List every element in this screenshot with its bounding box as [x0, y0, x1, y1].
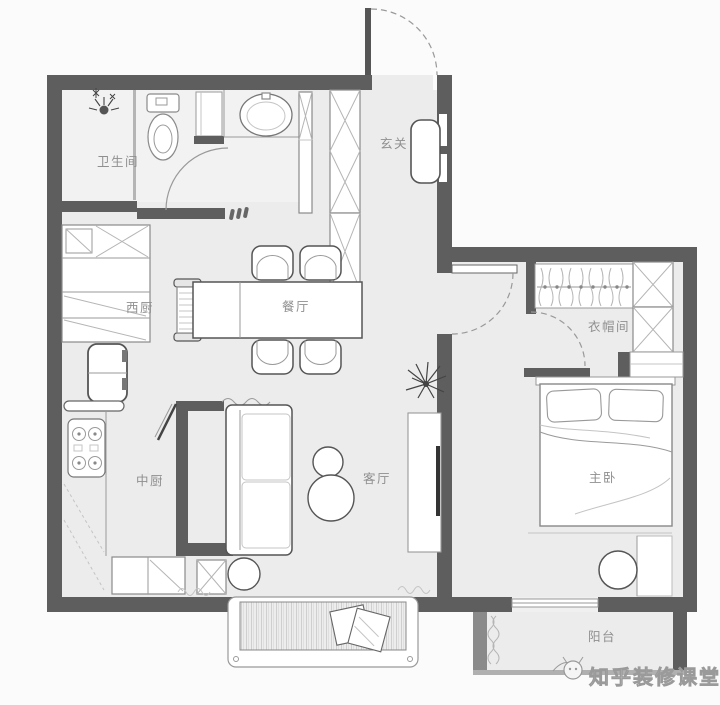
- label-bathroom: 卫生间: [97, 155, 139, 169]
- toilet-icon: [147, 94, 179, 160]
- shower-partition: [133, 90, 136, 200]
- fridge-icon: [88, 344, 127, 402]
- shoe-bench: [411, 120, 440, 183]
- wardrobe-hanging-rail: [535, 264, 633, 308]
- dining-chair: [252, 246, 293, 280]
- bedroom-balcony-glass: [512, 599, 598, 607]
- dining-table: [193, 282, 362, 338]
- label-master-bedroom: 主卧: [589, 471, 617, 485]
- label-entry: 玄关: [380, 136, 408, 151]
- coffee-table-large: [308, 475, 354, 521]
- label-dining: 餐厅: [282, 299, 310, 314]
- coffee-table-small: [313, 447, 343, 477]
- floor-stool: [228, 558, 260, 590]
- label-chinese-kitchen: 中厨: [136, 473, 164, 488]
- floor-plan-canvas: 卫生间 玄关 西厨 餐厅 中厨 客厅 衣帽间 主卧 阳台 知乎装修课堂: [0, 0, 720, 705]
- sink-icon: [240, 93, 292, 136]
- floor-plan-drawing: 卫生间 玄关 西厨 餐厅 中厨 客厅 衣帽间 主卧 阳台 知乎装修课堂: [0, 0, 720, 705]
- dining-chair: [300, 340, 341, 374]
- dining-chair: [300, 246, 341, 280]
- label-living: 客厅: [363, 471, 391, 486]
- dining-chair: [252, 340, 293, 374]
- bedroom-stool: [599, 551, 637, 589]
- sofa: [226, 405, 292, 555]
- watermark-text: 知乎装修课堂: [589, 665, 720, 689]
- kitchen-base-cabinet: [112, 557, 185, 594]
- balcony-door-panel: [637, 536, 672, 596]
- bed: [540, 384, 672, 526]
- tv-cabinet: [408, 413, 441, 552]
- label-cloakroom: 衣帽间: [588, 319, 630, 334]
- side-cabinet: [197, 560, 226, 594]
- stove-icon: [68, 419, 105, 477]
- label-balcony: 阳台: [588, 629, 616, 644]
- label-west-kitchen: 西厨: [126, 301, 154, 315]
